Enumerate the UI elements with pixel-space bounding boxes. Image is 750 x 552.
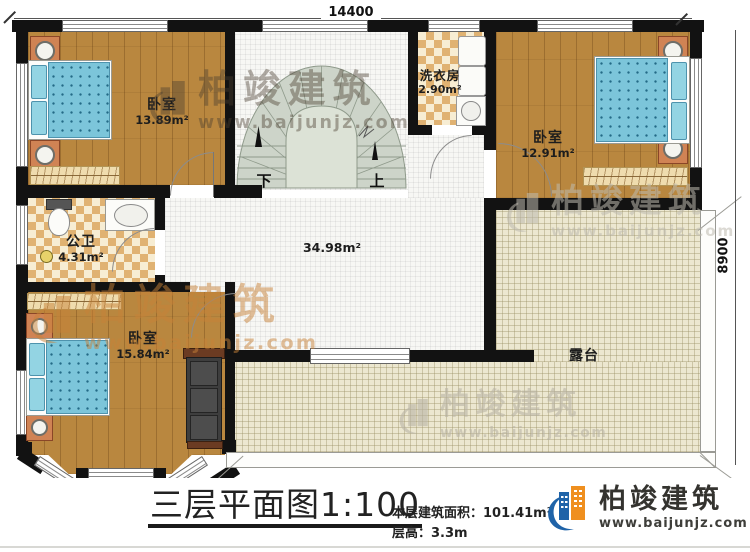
title-block: 三层平面图1:100 本层建筑面积：101.41m² 层高：3.3m — [0, 478, 750, 552]
floor-drain — [40, 250, 53, 263]
wardrobe — [30, 166, 120, 185]
terrace-floor-bottom — [230, 362, 700, 452]
floor-height-value: 3.3m — [431, 526, 468, 541]
window — [62, 20, 168, 32]
floor-height-label: 层高： — [392, 526, 431, 541]
brand-logo: 柏竣建筑 www.baijunjz.com — [545, 482, 748, 534]
wall — [230, 350, 310, 362]
brand-name: 柏竣建筑 — [599, 486, 748, 513]
wall — [408, 125, 432, 135]
wall — [368, 20, 428, 32]
floor-area-line: 本层建筑面积：101.41m² — [392, 504, 552, 524]
staircase-drawing — [235, 32, 408, 190]
wall — [18, 185, 170, 198]
wall — [155, 185, 165, 230]
wall — [408, 22, 418, 135]
sofa-cushion — [190, 361, 218, 386]
sofa-cushion — [190, 415, 218, 440]
washing-machine — [458, 36, 486, 66]
floor-height-line: 层高：3.3m — [392, 524, 552, 544]
brand-text: 柏竣建筑 www.baijunjz.com — [599, 486, 748, 531]
sofa-front — [187, 441, 223, 449]
wall — [225, 22, 235, 198]
hall-floor-lower — [235, 292, 490, 352]
sofa — [186, 357, 222, 443]
washing-machine — [458, 66, 486, 96]
floor-area-label: 本层建筑面积： — [392, 506, 483, 521]
terrace-door-threshold — [310, 348, 410, 364]
nightstand — [26, 414, 53, 441]
wardrobe — [583, 167, 688, 186]
floor-area-value: 101.41m² — [483, 506, 552, 521]
bathroom-sink — [105, 199, 155, 231]
window — [16, 63, 28, 167]
nightstand — [26, 313, 53, 340]
wardrobe — [27, 293, 122, 310]
pillow — [671, 102, 687, 140]
pillow — [29, 343, 45, 376]
dimension-line-right — [735, 30, 736, 465]
laundry-sink — [456, 96, 486, 126]
wall — [410, 350, 496, 362]
staircase — [235, 32, 408, 190]
hall-floor — [165, 198, 490, 292]
floor-plan-sheet: 下 上 — [0, 0, 750, 552]
toilet-bowl — [48, 208, 70, 236]
window — [690, 58, 702, 168]
wall — [690, 20, 702, 58]
window — [428, 20, 480, 32]
door-leaf — [213, 152, 214, 197]
wall — [225, 282, 235, 292]
plan-info: 本层建筑面积：101.41m² 层高：3.3m — [392, 504, 552, 544]
dimension-right-label: 8900 — [717, 226, 732, 286]
sheet-bottom-rule — [0, 546, 750, 548]
plan-title: 三层平面图1:100 — [148, 488, 422, 528]
mattress — [46, 340, 108, 414]
pillow — [31, 65, 47, 99]
pillow — [671, 62, 687, 100]
sink-basin — [461, 101, 481, 121]
wall — [18, 282, 190, 292]
wall — [16, 20, 28, 63]
terrace-parapet-right — [700, 210, 716, 452]
wall — [214, 185, 262, 198]
sofa-cushion — [190, 388, 218, 413]
pillow — [31, 101, 47, 135]
mattress — [48, 62, 110, 138]
wall — [484, 198, 702, 210]
wall — [472, 125, 484, 135]
dimension-top-label: 14400 — [321, 5, 381, 20]
brand-logo-icon — [545, 482, 591, 534]
window — [262, 20, 368, 32]
wall — [484, 198, 496, 362]
pillow — [29, 378, 45, 411]
terrace-floor-right — [496, 210, 700, 362]
window — [537, 20, 633, 32]
plan-title-text: 三层平面图 — [150, 485, 320, 524]
wall — [168, 20, 262, 32]
brand-url: www.baijunjz.com — [599, 516, 748, 531]
window — [16, 205, 28, 265]
sink-basin — [114, 204, 148, 227]
stairs-up-label: 上 — [362, 170, 392, 191]
mattress — [596, 58, 668, 142]
terrace-parapet-bottom — [226, 452, 716, 468]
